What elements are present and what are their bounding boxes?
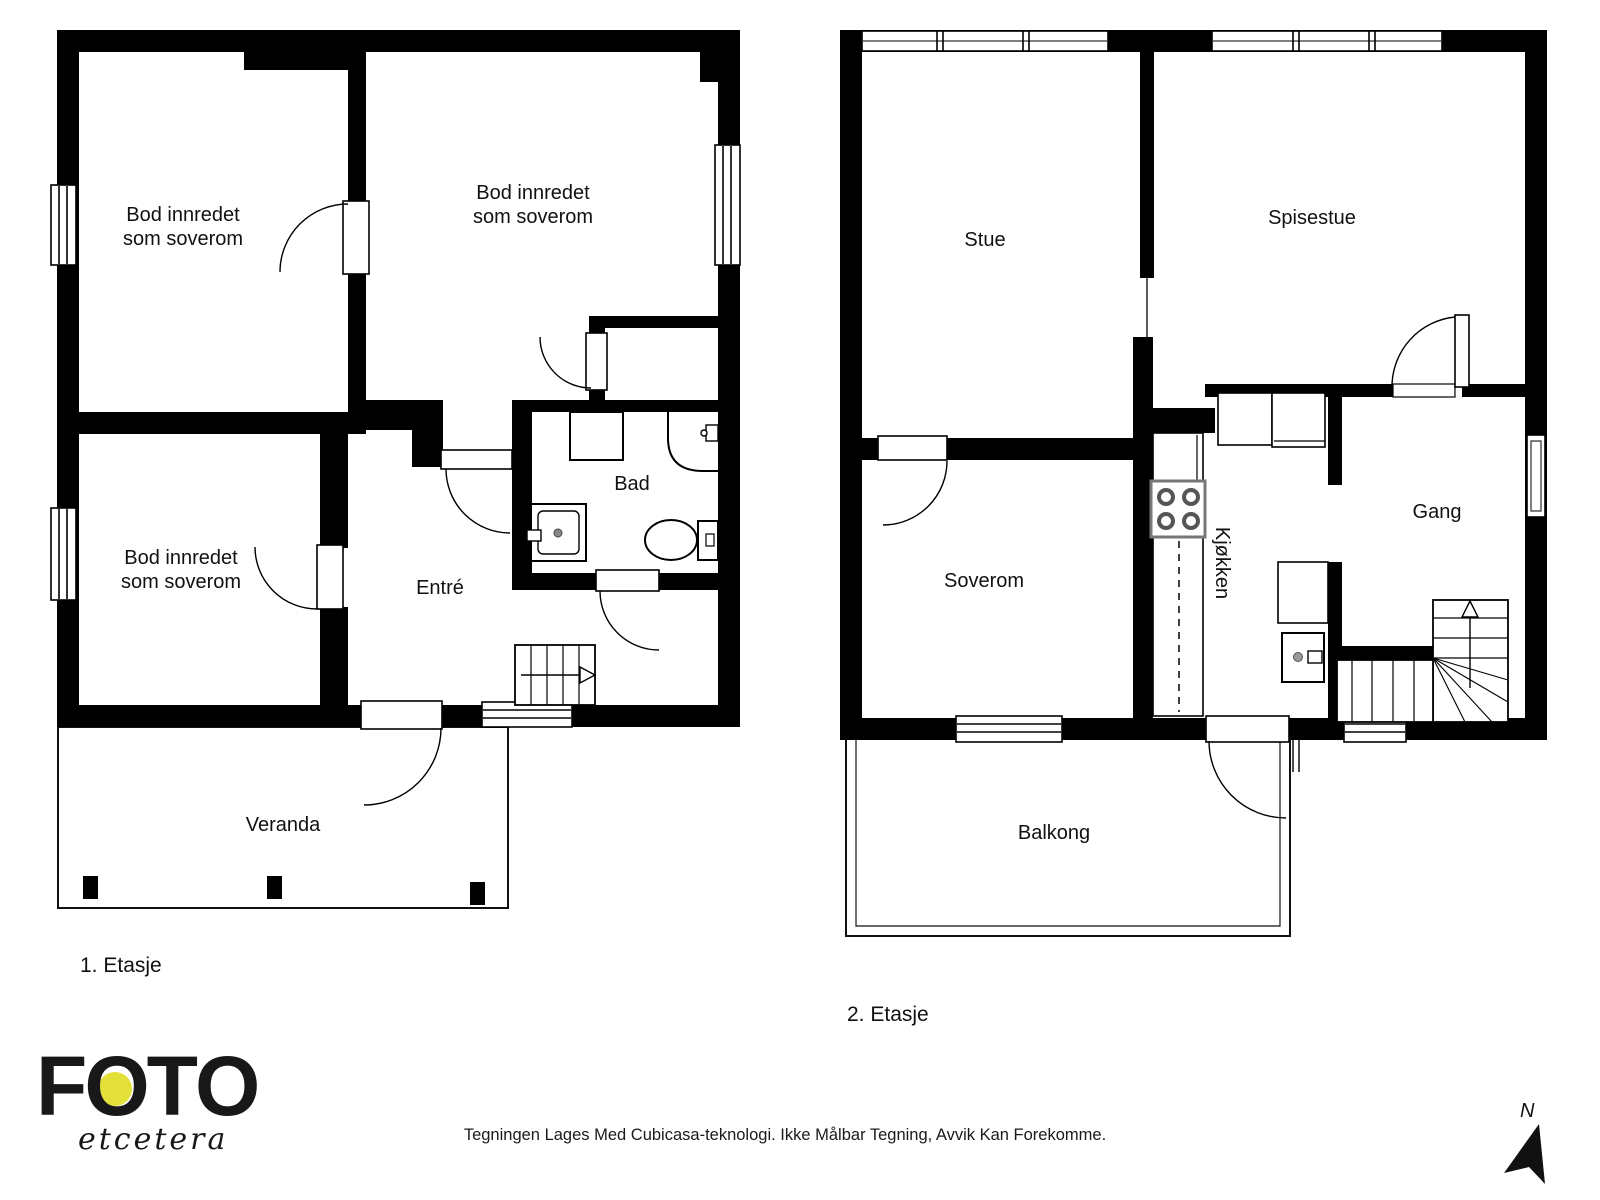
room-label-veranda: Veranda xyxy=(246,813,321,837)
stairs-icon xyxy=(515,645,595,705)
room-label-spisestue: Spisestue xyxy=(1268,206,1356,230)
logo-yellow-dot xyxy=(98,1072,132,1106)
kitchen-counter xyxy=(1153,433,1203,716)
veranda-post-icon xyxy=(83,876,98,899)
cabinet-icon xyxy=(1218,393,1328,623)
veranda-post-icon xyxy=(470,882,485,905)
room-label-balkong: Balkong xyxy=(1018,821,1090,845)
cabinet-icon xyxy=(570,412,623,460)
dishwasher-icon xyxy=(1282,633,1324,682)
room-label-gang: Gang xyxy=(1413,500,1462,524)
room-label-entre: Entré xyxy=(416,576,464,600)
floor2-plan xyxy=(840,30,1547,936)
floorplan-linework xyxy=(0,0,1600,1200)
floorplan-page: Bod innredet som soverom Bod innredet so… xyxy=(0,0,1600,1200)
north-label: N xyxy=(1520,1100,1534,1123)
room-label-kjokken: Kjøkken xyxy=(1210,527,1234,599)
veranda-post-icon xyxy=(267,876,282,899)
logo-letter: O xyxy=(84,1044,146,1128)
room-label-soverom: Soverom xyxy=(944,569,1024,593)
toilet-icon xyxy=(645,520,718,560)
logo-letter: F xyxy=(36,1044,84,1128)
sink-icon xyxy=(527,504,586,561)
floor1-plan xyxy=(51,30,740,908)
room-label-bod-bottom-left: Bod innredet som soverom xyxy=(116,546,246,594)
room-label-bod-top-left: Bod innredet som soverom xyxy=(118,203,248,251)
room-label-stue: Stue xyxy=(964,228,1005,252)
room-label-bad: Bad xyxy=(614,472,650,496)
floor1-label: 1. Etasje xyxy=(80,954,162,978)
floor2-label: 2. Etasje xyxy=(847,1003,929,1027)
logo-letter: O xyxy=(195,1044,257,1128)
logo-letter: T xyxy=(147,1044,195,1128)
shower-icon xyxy=(668,412,718,471)
stove-icon xyxy=(1151,481,1205,537)
room-label-bod-top-right: Bod innredet som soverom xyxy=(468,181,598,229)
stairs-icon xyxy=(1337,600,1508,722)
floor1-walls xyxy=(57,30,740,727)
logo-text: FOTO xyxy=(36,1044,296,1128)
